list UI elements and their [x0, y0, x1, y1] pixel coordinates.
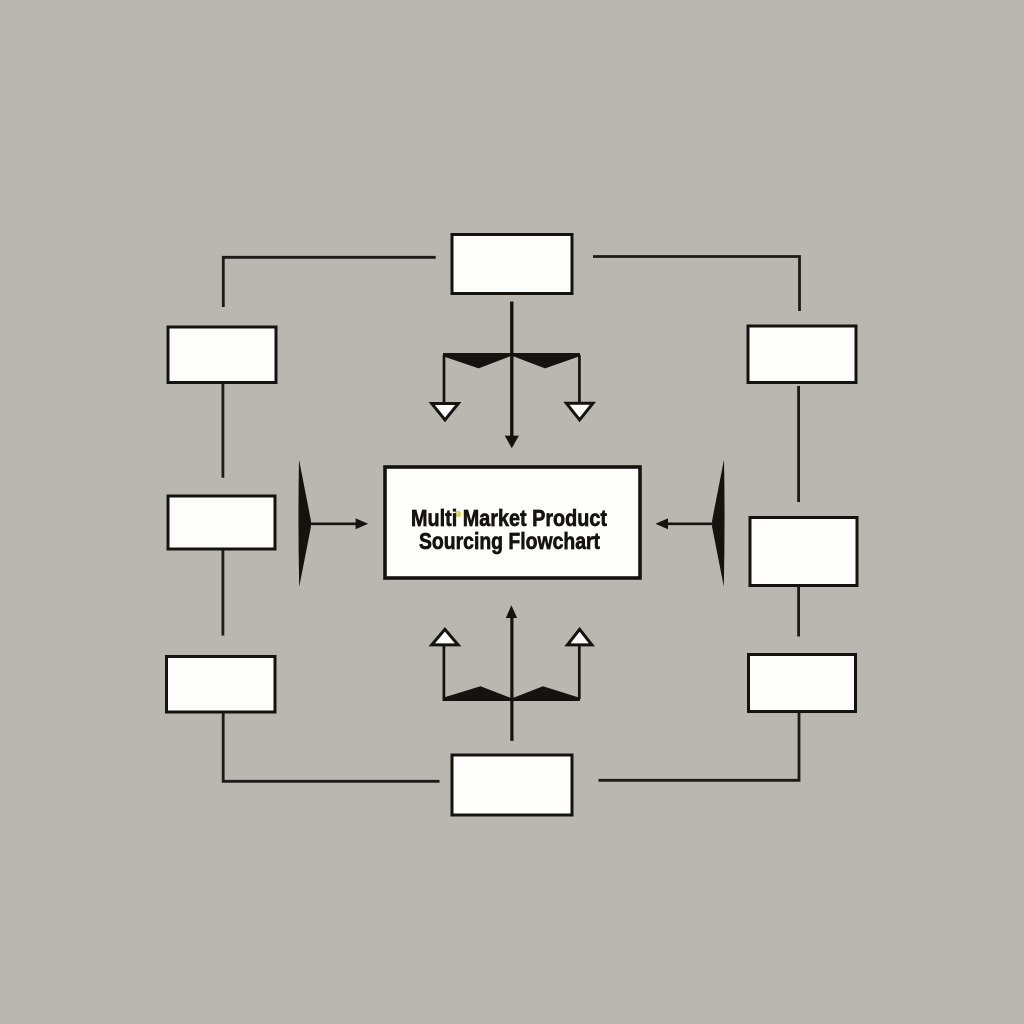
svg-text:Sourcing Flowchart: Sourcing Flowchart — [419, 528, 600, 554]
